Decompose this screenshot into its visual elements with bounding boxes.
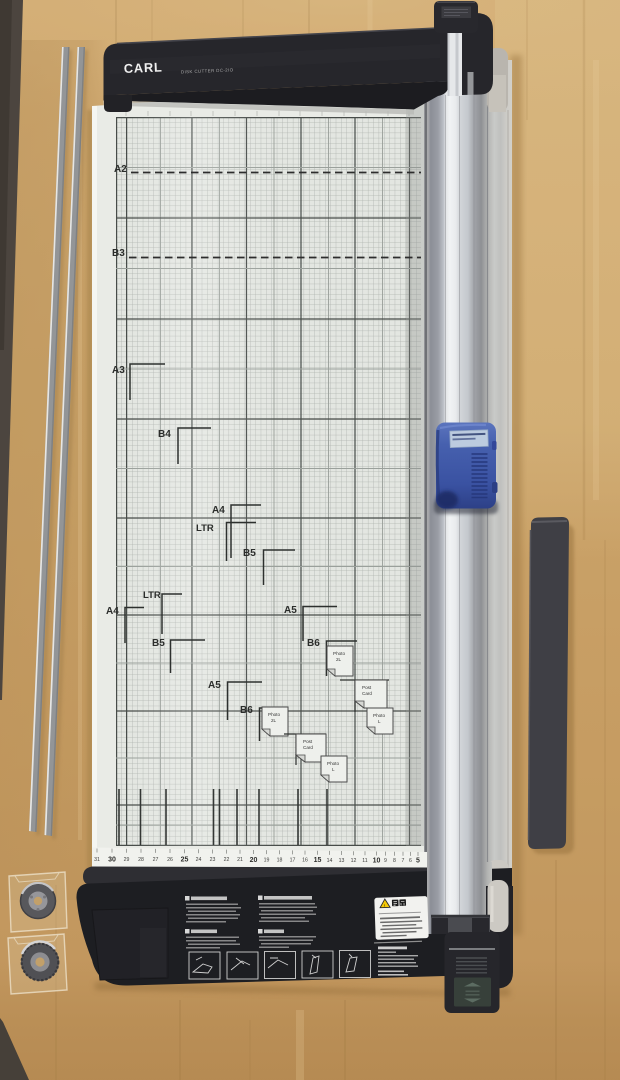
svg-text:19: 19 — [264, 858, 270, 864]
svg-text:29: 29 — [124, 857, 130, 863]
svg-text:B5: B5 — [152, 638, 165, 649]
svg-text:A5: A5 — [208, 680, 221, 691]
svg-text:!: ! — [384, 904, 385, 908]
svg-text:5: 5 — [416, 858, 420, 865]
svg-text:Post: Post — [362, 685, 372, 690]
svg-text:B3: B3 — [112, 248, 125, 259]
svg-text:Photo: Photo — [373, 713, 385, 718]
svg-text:Photo: Photo — [268, 712, 280, 717]
svg-text:CARL: CARL — [123, 59, 162, 76]
svg-text:L: L — [378, 719, 381, 724]
svg-text:30: 30 — [108, 857, 116, 864]
svg-text:A3: A3 — [112, 365, 125, 376]
svg-text:13: 13 — [339, 858, 345, 864]
svg-text:B6: B6 — [307, 638, 320, 649]
svg-text:18: 18 — [277, 858, 283, 864]
svg-text:LTR: LTR — [143, 590, 161, 601]
svg-text:2L: 2L — [271, 718, 277, 723]
svg-text:25: 25 — [181, 857, 189, 864]
svg-text:B5: B5 — [243, 548, 256, 559]
svg-text:22: 22 — [224, 857, 230, 863]
svg-text:28: 28 — [138, 857, 144, 863]
svg-text:A2: A2 — [114, 164, 127, 175]
svg-text:A4: A4 — [106, 606, 119, 617]
svg-text:A5: A5 — [284, 605, 297, 616]
svg-text:7: 7 — [402, 858, 405, 864]
svg-text:9: 9 — [384, 858, 387, 864]
svg-text:27: 27 — [153, 857, 159, 863]
svg-text:31: 31 — [94, 857, 100, 863]
svg-text:B4: B4 — [158, 429, 171, 440]
svg-text:14: 14 — [327, 858, 333, 864]
svg-text:Photo: Photo — [327, 761, 339, 766]
svg-text:Card: Card — [362, 691, 372, 696]
svg-text:LTR: LTR — [196, 523, 214, 534]
svg-text:17: 17 — [290, 858, 296, 864]
svg-text:L: L — [332, 767, 335, 772]
svg-text:26: 26 — [167, 857, 173, 863]
svg-text:21: 21 — [237, 857, 243, 863]
svg-text:16: 16 — [302, 858, 308, 864]
svg-text:B6: B6 — [240, 705, 253, 716]
svg-text:6: 6 — [409, 858, 412, 864]
svg-text:A4: A4 — [212, 505, 225, 516]
svg-text:11: 11 — [362, 858, 367, 864]
svg-text:8: 8 — [393, 858, 396, 864]
svg-text:Photo: Photo — [333, 651, 345, 656]
svg-text:12: 12 — [351, 858, 357, 864]
svg-text:Card: Card — [303, 745, 313, 750]
svg-text:23: 23 — [210, 857, 216, 863]
svg-text:15: 15 — [314, 857, 322, 864]
svg-text:Post: Post — [303, 739, 313, 744]
svg-text:10: 10 — [373, 858, 381, 865]
svg-text:24: 24 — [196, 857, 202, 863]
svg-text:2L: 2L — [336, 657, 342, 662]
svg-text:20: 20 — [250, 857, 258, 864]
